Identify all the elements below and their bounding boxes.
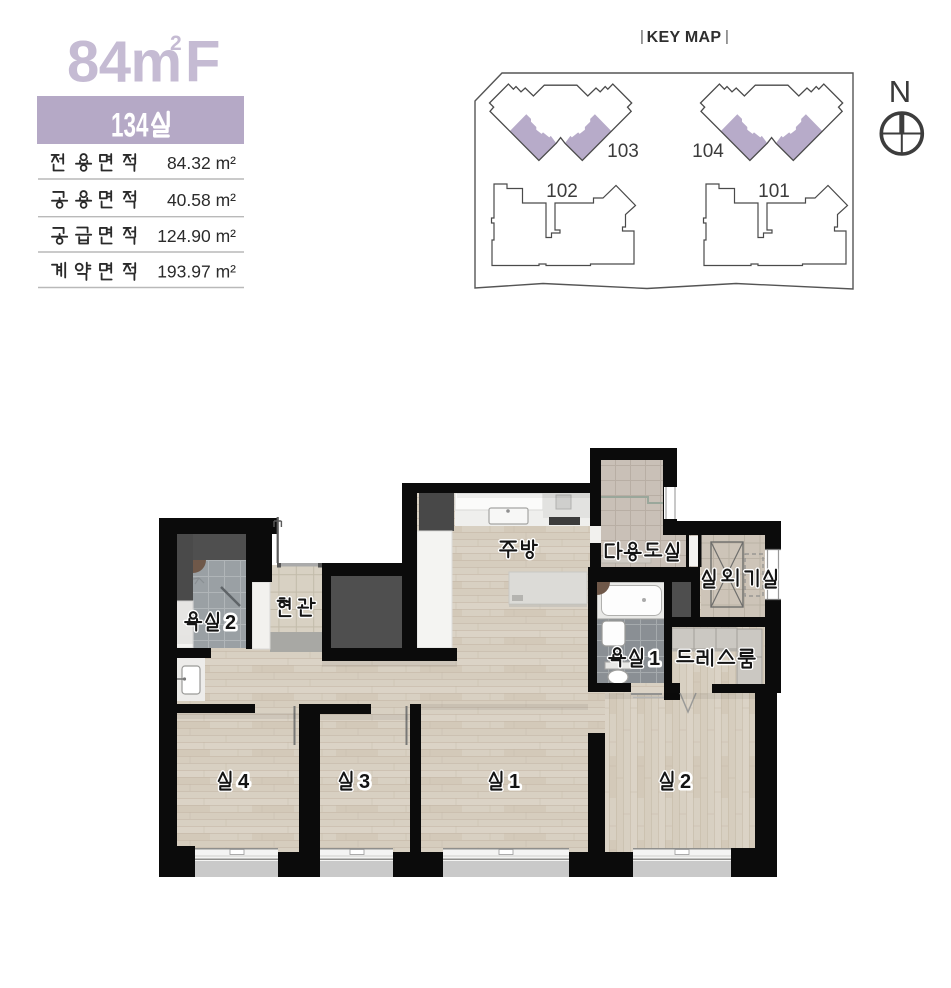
- svg-text:KEY MAP: KEY MAP: [647, 29, 722, 46]
- svg-text:|: |: [725, 28, 729, 45]
- svg-text:104: 104: [692, 141, 724, 162]
- svg-text:1: 1: [509, 771, 520, 793]
- svg-text:40.58 m²: 40.58 m²: [167, 190, 236, 210]
- svg-text:|: |: [640, 28, 644, 45]
- svg-text:F: F: [185, 30, 220, 95]
- svg-text:124.90 m²: 124.90 m²: [157, 226, 236, 246]
- svg-text:N: N: [889, 74, 911, 109]
- svg-text:2: 2: [170, 32, 182, 55]
- svg-text:3: 3: [359, 771, 370, 793]
- svg-text:193.97 m²: 193.97 m²: [157, 262, 236, 282]
- svg-text:84.32 m²: 84.32 m²: [167, 153, 236, 173]
- svg-text:102: 102: [546, 181, 578, 202]
- svg-text:134: 134: [111, 107, 148, 145]
- svg-text:1: 1: [649, 648, 660, 670]
- svg-text:2: 2: [225, 612, 236, 634]
- svg-text:4: 4: [238, 771, 250, 793]
- svg-text:101: 101: [758, 181, 790, 202]
- svg-text:2: 2: [680, 771, 691, 793]
- svg-text:103: 103: [607, 141, 639, 162]
- svg-text:84m: 84m: [67, 30, 182, 95]
